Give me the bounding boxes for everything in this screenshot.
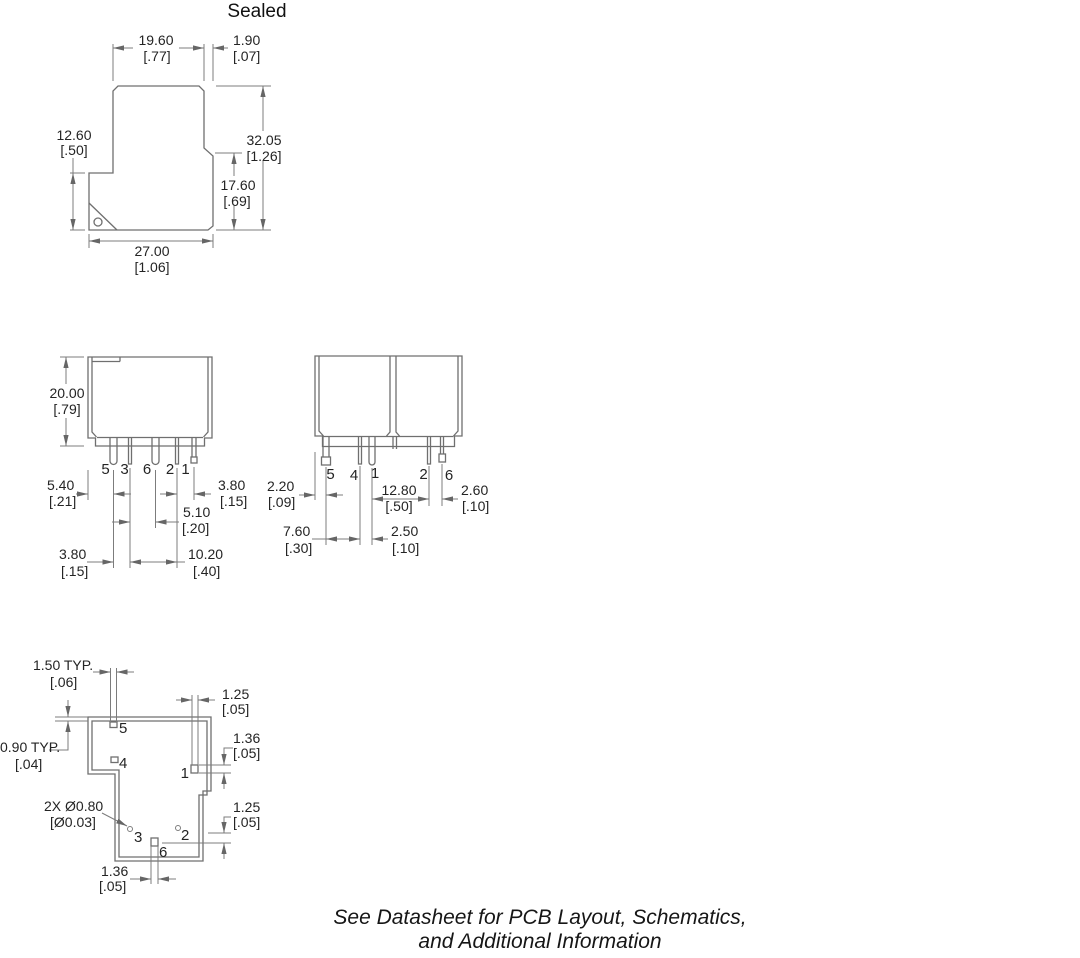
- mounting-hole: [94, 218, 102, 226]
- dim-pin1-pin2-in: [.50]: [385, 498, 412, 514]
- dim-bottom-width-in: [1.06]: [134, 259, 169, 275]
- dim-left-height-in: [.50]: [60, 142, 87, 158]
- dim-top-width-in: [.77]: [143, 48, 170, 64]
- pad-5: [110, 722, 117, 728]
- pin-label: 1: [181, 461, 189, 478]
- pin-2-lead: [428, 436, 431, 464]
- side-view-extension-lines: [70, 44, 271, 248]
- dim-pin5-pin3-mm: 3.80: [59, 546, 86, 562]
- footprint-outer-outline: [88, 717, 211, 861]
- dim-pin2-pin1-in: [.15]: [220, 493, 247, 509]
- pcb-view-dimension-lines: [49, 672, 233, 879]
- dim-hole-dia-mm: 2X Ø0.80: [44, 798, 103, 814]
- pin-1-tab: [191, 457, 197, 463]
- pin-label: 6: [445, 467, 453, 484]
- dim-outline-offset-in: [.04]: [15, 756, 42, 772]
- pin-label: 2: [166, 461, 174, 478]
- dim-pin5-pin4-in: [.30]: [285, 540, 312, 556]
- dim-pin3-pin6-mm: 5.10: [183, 504, 210, 520]
- pin-label: 2: [181, 827, 189, 844]
- relay-case-outline: [89, 86, 213, 230]
- view-title: Sealed: [227, 1, 286, 22]
- dim-pad6-height-mm: 1.25: [233, 799, 260, 815]
- pin-label: 2: [419, 466, 427, 483]
- pin-2-lead: [176, 437, 179, 464]
- pad-6: [151, 838, 158, 846]
- front-view: 5 3 6 2 1 20.00 [.79] 5.40 [.21] 3.80 [.…: [47, 357, 247, 579]
- dim-top-width-mm: 19.60: [138, 32, 173, 48]
- hole-2: [176, 826, 181, 831]
- dim-right-height-in: [.69]: [223, 193, 250, 209]
- dim-pin4-pin1-mm: 2.50: [391, 523, 418, 539]
- case-outline: [88, 357, 212, 446]
- pin-label: 3: [134, 829, 142, 846]
- pin-label: 3: [120, 461, 128, 478]
- corner-chamfer-line: [89, 203, 117, 230]
- pin-5-lead: [110, 437, 117, 465]
- hole-3: [128, 827, 133, 832]
- case-inner-lines: [92, 357, 208, 438]
- pin-label: 6: [159, 844, 167, 861]
- pin-label: 5: [119, 720, 127, 737]
- dim-pad1-height-mm: 1.36: [233, 730, 260, 746]
- pin-4-lead: [359, 436, 362, 464]
- dim-pin2-pin6-mm: 2.60: [461, 482, 488, 498]
- dim-flange-in: [.07]: [233, 48, 260, 64]
- pcb-layout-view: 5 4 1 3 2 6 1.50 TYP. [.06] 1.25 [.05] 0: [0, 657, 260, 894]
- dim-pad1-width-mm: 1.25: [222, 686, 249, 702]
- pin-label: 6: [143, 461, 151, 478]
- dim-pin5-pin3-in: [.15]: [61, 563, 88, 579]
- dim-pad-width-typ-in: [.06]: [50, 674, 77, 690]
- pin-leads: [322, 436, 446, 465]
- dim-total-height-in: [1.26]: [246, 148, 281, 164]
- pin-1-lead: [192, 437, 196, 457]
- footprint-inner-outline: [92, 721, 207, 857]
- relay-dimension-drawing: Sealed 19.60 [.77] 1.90 [.07] 12.60 [.50…: [0, 0, 1080, 958]
- pin-label: 4: [350, 467, 358, 484]
- dim-total-height-mm: 32.05: [246, 132, 281, 148]
- side-view-dimension-lines: [73, 48, 263, 241]
- side-view-sealed: Sealed 19.60 [.77] 1.90 [.07] 12.60 [.50…: [56, 1, 286, 275]
- dim-pin3-pin6-in: [.20]: [182, 520, 209, 536]
- pin-6-lead: [152, 437, 159, 465]
- pin-label: 1: [181, 765, 189, 782]
- dim-pin3-pin2-in: [.40]: [193, 563, 220, 579]
- footer-line-1: See Datasheet for PCB Layout, Schematics…: [333, 906, 746, 929]
- end-view: 5 4 1 2 6 2.20 [.09] 12.80 [.50] 2.60 [.…: [267, 356, 489, 556]
- dim-pad6-width-in: [.05]: [99, 878, 126, 894]
- pin-label: 5: [101, 461, 109, 478]
- pin-3-lead: [129, 437, 132, 464]
- pin-6-lead: [441, 436, 444, 454]
- dim-edge-pin5-in: [.21]: [49, 493, 76, 509]
- end-view-dimension-lines: [299, 495, 458, 539]
- footer-note: See Datasheet for PCB Layout, Schematics…: [333, 906, 746, 953]
- drawing-sheet: Sealed 19.60 [.77] 1.90 [.07] 12.60 [.50…: [0, 0, 1080, 958]
- pin-label: 4: [119, 755, 127, 772]
- pad-1: [191, 765, 198, 773]
- dim-outline-offset-mm: 0.90 TYP.: [0, 739, 60, 755]
- dim-pin4-pin1-in: [.10]: [392, 540, 419, 556]
- dim-pin2-pin6-in: [.10]: [462, 498, 489, 514]
- pin-label: 5: [326, 466, 334, 483]
- dim-edge-pin5-mm: 2.20: [267, 478, 294, 494]
- dim-edge-pin5-mm: 5.40: [47, 477, 74, 493]
- dim-right-height-mm: 17.60: [220, 177, 255, 193]
- dim-left-height-mm: 12.60: [56, 127, 91, 143]
- dim-pad1-width-in: [.05]: [222, 701, 249, 717]
- dim-edge-pin5-in: [.09]: [268, 494, 295, 510]
- dim-pad-width-typ-mm: 1.50 TYP.: [33, 657, 93, 673]
- case-inner-lines: [319, 356, 458, 449]
- dim-pin3-pin2-mm: 10.20: [188, 546, 223, 562]
- pin-6-tab: [439, 454, 446, 462]
- dim-flange-mm: 1.90: [233, 32, 260, 48]
- footer-line-2: and Additional Information: [418, 930, 661, 953]
- dim-bottom-width-mm: 27.00: [134, 243, 169, 259]
- dim-pad6-height-in: [.05]: [233, 814, 260, 830]
- dim-case-height-mm: 20.00: [49, 385, 84, 401]
- dim-case-height-in: [.79]: [53, 401, 80, 417]
- dim-pin2-pin1-mm: 3.80: [218, 477, 245, 493]
- pad-4: [111, 757, 118, 763]
- dim-pin1-pin2-mm: 12.80: [381, 482, 416, 498]
- dim-pad1-height-in: [.05]: [233, 745, 260, 761]
- pin-1-lead: [369, 436, 375, 465]
- pin-5-tab: [322, 457, 331, 465]
- dim-pin5-pin4-mm: 7.60: [283, 523, 310, 539]
- dim-pad6-width-mm: 1.36: [101, 863, 128, 879]
- dim-hole-dia-in: [Ø0.03]: [50, 814, 96, 830]
